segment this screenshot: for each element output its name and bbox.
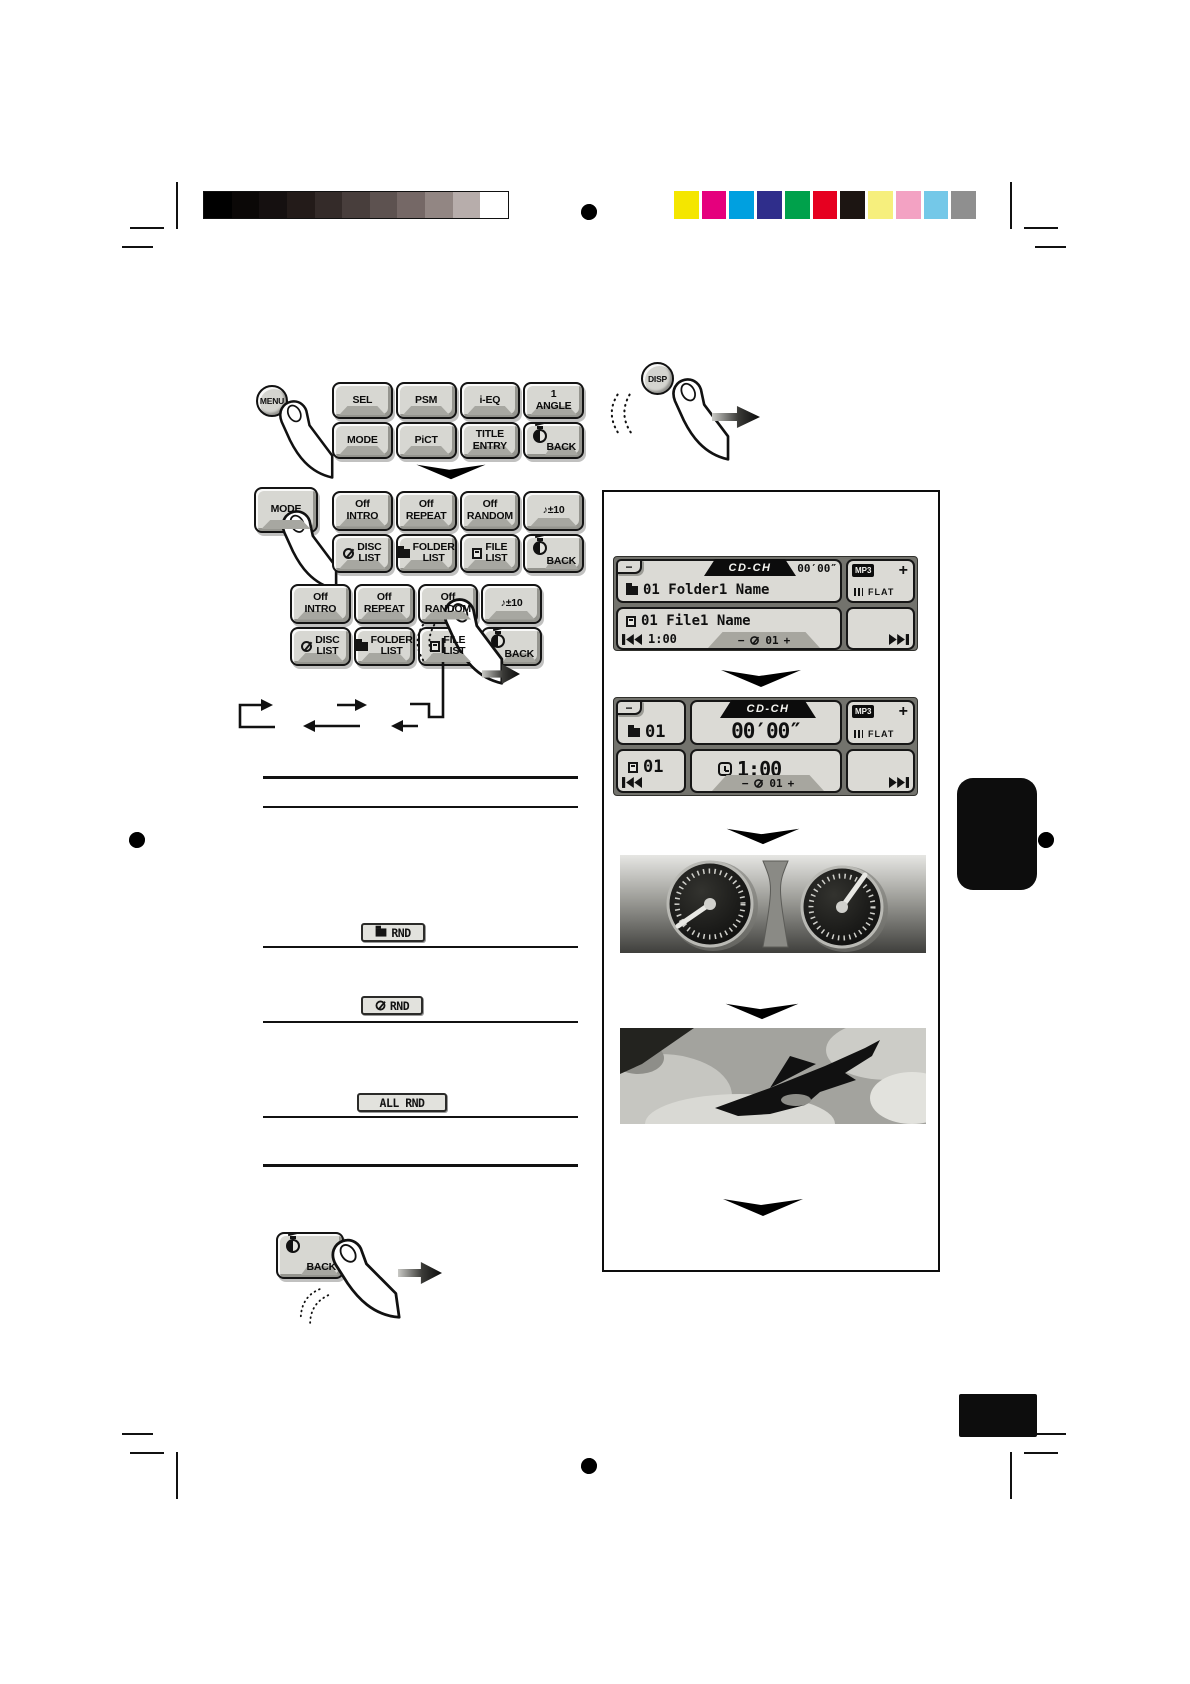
- disc-select-strip[interactable]: − 01 +: [708, 632, 820, 648]
- disc-number: 01: [765, 634, 778, 647]
- eq-mode: FLAT: [868, 587, 894, 597]
- color-swatch: [757, 191, 782, 219]
- button-label: PiCT: [415, 435, 438, 446]
- button-label: FOLDER LIST: [371, 635, 413, 658]
- color-swatch: [924, 191, 949, 219]
- eq-icon: [854, 588, 863, 596]
- crop-mark: [1010, 182, 1012, 229]
- disc-icon: [375, 1001, 385, 1011]
- color-swatch: [840, 191, 865, 219]
- button-label: Off RANDOM: [425, 592, 471, 615]
- all-random-indicator: ALL RND: [357, 1093, 447, 1112]
- timer-icon: [533, 541, 547, 555]
- eq-mode: FLAT: [868, 729, 894, 739]
- folder-name: 01 Folder1 Name: [643, 582, 769, 598]
- table-rule: [263, 1164, 578, 1167]
- lcd-next-cell[interactable]: [846, 607, 915, 650]
- step-down-arrow: [414, 462, 488, 481]
- button-label: BACK: [306, 1262, 336, 1273]
- button-label: Off INTRO: [305, 592, 337, 615]
- button-label: FOLDER LIST: [413, 542, 455, 565]
- button-label: MODE: [271, 504, 302, 515]
- timer-icon: [491, 634, 505, 648]
- display-screen-names: − CD-CH 00′00″ 01 Folder1 Name MP3 + FLA…: [613, 556, 918, 651]
- keycap-button[interactable]: Off RANDOM: [418, 584, 479, 624]
- keycap-button[interactable]: ♪±10: [523, 491, 584, 531]
- timer-icon: [286, 1239, 300, 1253]
- color-swatch: [813, 191, 838, 219]
- lcd-mp3-cell[interactable]: MP3 + FLAT: [846, 700, 915, 745]
- play-time: 1:00: [648, 632, 677, 646]
- color-calibration-bar: [674, 191, 976, 219]
- keycap-button[interactable]: i-EQ: [460, 382, 521, 419]
- crop-mark: [1024, 227, 1058, 229]
- keycap-button[interactable]: Off INTRO: [290, 584, 351, 624]
- registration-mark: [571, 1448, 607, 1484]
- button-label: Off RANDOM: [467, 499, 513, 522]
- button-label: BACK: [546, 556, 576, 567]
- display-screen-time: − 01 CD-CH 00′00″ MP3 + FLAT 01: [613, 697, 918, 796]
- next-track-icon[interactable]: [889, 777, 909, 788]
- lcd-folder-cell[interactable]: − CD-CH 00′00″ 01 Folder1 Name: [616, 559, 842, 603]
- keycap-button[interactable]: DISC LIST: [332, 534, 393, 574]
- gray-swatch: [342, 192, 370, 218]
- crop-mark: [1010, 1452, 1012, 1499]
- keycap-button[interactable]: FOLDER LIST: [354, 627, 415, 667]
- keycap-button[interactable]: FILE LIST: [460, 534, 521, 574]
- disc-random-indicator: RND: [361, 996, 423, 1015]
- keycap-button[interactable]: SEL: [332, 382, 393, 419]
- folder-random-indicator: RND: [361, 923, 425, 942]
- button-label: Off REPEAT: [364, 592, 405, 615]
- gray-swatch: [370, 192, 398, 218]
- eq-icon: [854, 730, 863, 738]
- crop-mark: [130, 227, 164, 229]
- color-swatch: [674, 191, 699, 219]
- lcd-time-cell[interactable]: 1:00 − 01 +: [690, 749, 842, 793]
- key-shadow: [339, 406, 386, 415]
- keycap-button[interactable]: BACK: [523, 422, 584, 459]
- table-rule: [263, 1116, 578, 1118]
- key-shadow: [339, 446, 386, 455]
- section-edge-tab: [957, 778, 1037, 890]
- keycap-button[interactable]: TITLE ENTRY: [460, 422, 521, 459]
- color-swatch: [896, 191, 921, 219]
- key-shadow: [403, 446, 450, 455]
- disc-select-strip[interactable]: − 01 +: [712, 775, 824, 791]
- lcd-next-cell[interactable]: [846, 749, 915, 793]
- keycap-button[interactable]: 1 ANGLE: [523, 382, 584, 419]
- page-number-block: [959, 1394, 1037, 1437]
- motion-dashes: [608, 388, 640, 442]
- table-rule: [263, 1021, 578, 1023]
- disc-icon: [750, 636, 759, 645]
- file-icon: [430, 641, 440, 652]
- gray-swatch: [315, 192, 343, 218]
- folder-icon: [628, 728, 640, 737]
- gray-swatch: [232, 192, 260, 218]
- disc-number: 01: [769, 777, 782, 790]
- keycap-button[interactable]: Off INTRO: [332, 491, 393, 531]
- next-track-icon[interactable]: [889, 634, 909, 645]
- crop-mark: [130, 1452, 164, 1454]
- crop-mark: [176, 1452, 178, 1499]
- keycap-button[interactable]: Off RANDOM: [460, 491, 521, 531]
- keycap-button[interactable]: Off REPEAT: [396, 491, 457, 531]
- color-swatch: [785, 191, 810, 219]
- mp3-badge: MP3: [852, 564, 874, 577]
- disc-icon: [301, 641, 312, 652]
- button-label: DISC LIST: [315, 635, 339, 658]
- folder-icon: [376, 928, 387, 936]
- crop-mark: [1024, 1452, 1058, 1454]
- folder-name-row: 01 Folder1 Name: [626, 582, 769, 598]
- gray-swatch: [425, 192, 453, 218]
- lcd-counter-cell[interactable]: CD-CH 00′00″: [690, 700, 842, 745]
- sequence-down-arrow: [721, 1001, 803, 1021]
- keycap-button[interactable]: PSM: [396, 382, 457, 419]
- button-label: i-EQ: [479, 395, 500, 406]
- gray-swatch: [480, 192, 508, 218]
- keycap-button[interactable]: MODE: [332, 422, 393, 459]
- keycap-button[interactable]: FOLDER LIST: [396, 534, 457, 574]
- sequence-down-arrow: [721, 1196, 805, 1218]
- crop-mark: [1035, 246, 1066, 248]
- key-shadow: [403, 406, 450, 415]
- folder-icon: [398, 549, 410, 558]
- keycap-button[interactable]: Off REPEAT: [354, 584, 415, 624]
- previous-track-icon[interactable]: [622, 777, 642, 788]
- source-badge: CD-CH: [704, 559, 796, 576]
- button-label: DISC LIST: [357, 542, 381, 565]
- lcd-file-cell[interactable]: 01 File1 Name 1:00 − 01 +: [616, 607, 842, 650]
- button-label: TITLE ENTRY: [473, 429, 507, 452]
- minus-tab[interactable]: −: [616, 559, 642, 574]
- gray-swatch: [397, 192, 425, 218]
- plus-button[interactable]: +: [899, 704, 908, 720]
- file-number: 01: [643, 757, 663, 777]
- lcd-folder-cell[interactable]: − 01: [616, 700, 686, 745]
- folder-icon: [626, 586, 638, 595]
- minus-tab[interactable]: −: [616, 700, 642, 715]
- disc-minus[interactable]: −: [742, 777, 749, 790]
- disc-icon: [343, 548, 354, 559]
- keycap-button[interactable]: PiCT: [396, 422, 457, 459]
- mp3-badge: MP3: [852, 705, 874, 718]
- file-name-row: 01 File1 Name: [626, 613, 751, 629]
- eq-row: FLAT: [854, 729, 894, 739]
- button-label: BACK: [546, 442, 576, 453]
- color-swatch: [702, 191, 727, 219]
- mode-menu-grid: Off INTRO Off REPEAT Off RANDOM ♪±10: [332, 491, 584, 573]
- random-mode-cycle-diagram: [225, 638, 460, 738]
- sequence-down-arrow: [719, 667, 803, 689]
- file-icon: [626, 616, 636, 627]
- button-label: ♪±10: [543, 505, 565, 516]
- table-rule: [263, 946, 578, 948]
- button-label: FILE LIST: [443, 635, 465, 658]
- file-name: 01 File1 Name: [641, 613, 751, 629]
- pointing-finger: [258, 400, 334, 480]
- file-icon: [472, 548, 482, 559]
- gray-swatch: [204, 192, 232, 218]
- menu-button-grid: SEL PSM i-EQ 1 ANGLE: [332, 382, 584, 459]
- grayscale-calibration-bar: [203, 191, 509, 219]
- color-swatch: [868, 191, 893, 219]
- disc-plus[interactable]: +: [784, 634, 791, 647]
- crop-mark: [122, 1433, 153, 1435]
- crop-mark: [122, 246, 153, 248]
- folder-number: 01: [645, 722, 665, 742]
- folder-icon: [356, 642, 368, 651]
- result-arrow: [398, 1262, 442, 1284]
- table-rule: [263, 806, 578, 808]
- disc-track-counter: 00′00″: [797, 562, 837, 575]
- button-label: Off INTRO: [347, 499, 379, 522]
- disc-icon: [754, 779, 763, 788]
- color-swatch: [951, 191, 976, 219]
- registration-mark: [119, 822, 155, 858]
- timer-icon: [533, 429, 547, 443]
- sequence-down-arrow: [721, 826, 805, 846]
- lcd-file-cell[interactable]: 01: [616, 749, 686, 793]
- button-label: BACK: [504, 649, 534, 660]
- table-rule: [263, 776, 578, 779]
- disc-minus[interactable]: −: [738, 634, 745, 647]
- button-label: PSM: [415, 395, 437, 406]
- eq-row: FLAT: [854, 587, 894, 597]
- button-label: SEL: [352, 395, 372, 406]
- crop-mark: [176, 182, 178, 229]
- disc-track-counter: 00′00″: [692, 719, 840, 743]
- key-shadow: [530, 518, 577, 527]
- button-label: FILE LIST: [485, 542, 507, 565]
- key-shadow: [467, 406, 514, 415]
- button-label: MODE: [347, 435, 378, 446]
- gray-swatch: [287, 192, 315, 218]
- registration-mark: [571, 194, 607, 230]
- crop-mark: [1035, 1433, 1066, 1435]
- button-label: ♪±10: [501, 598, 523, 609]
- color-swatch: [729, 191, 754, 219]
- clock-icon: [718, 762, 732, 776]
- disc-plus[interactable]: +: [788, 777, 795, 790]
- plus-button[interactable]: +: [899, 563, 908, 579]
- file-number-row: 01: [628, 757, 663, 777]
- gray-swatch: [259, 192, 287, 218]
- folder-number-row: 01: [628, 722, 665, 742]
- keycap-button[interactable]: BACK: [523, 534, 584, 574]
- manual-page: MENU SEL PSM i-EQ 1 ANGLE: [0, 0, 1190, 1684]
- space-shuttle-wallpaper-image: [620, 1028, 926, 1124]
- source-badge: CD-CH: [720, 700, 816, 718]
- file-icon: [628, 762, 638, 773]
- gauges-wallpaper-image: [620, 855, 926, 953]
- gray-swatch: [453, 192, 481, 218]
- button-label: Off REPEAT: [406, 499, 447, 522]
- previous-track-icon[interactable]: [622, 634, 642, 645]
- button-label: 1 ANGLE: [536, 389, 572, 412]
- lcd-mp3-cell[interactable]: MP3 + FLAT: [846, 559, 915, 603]
